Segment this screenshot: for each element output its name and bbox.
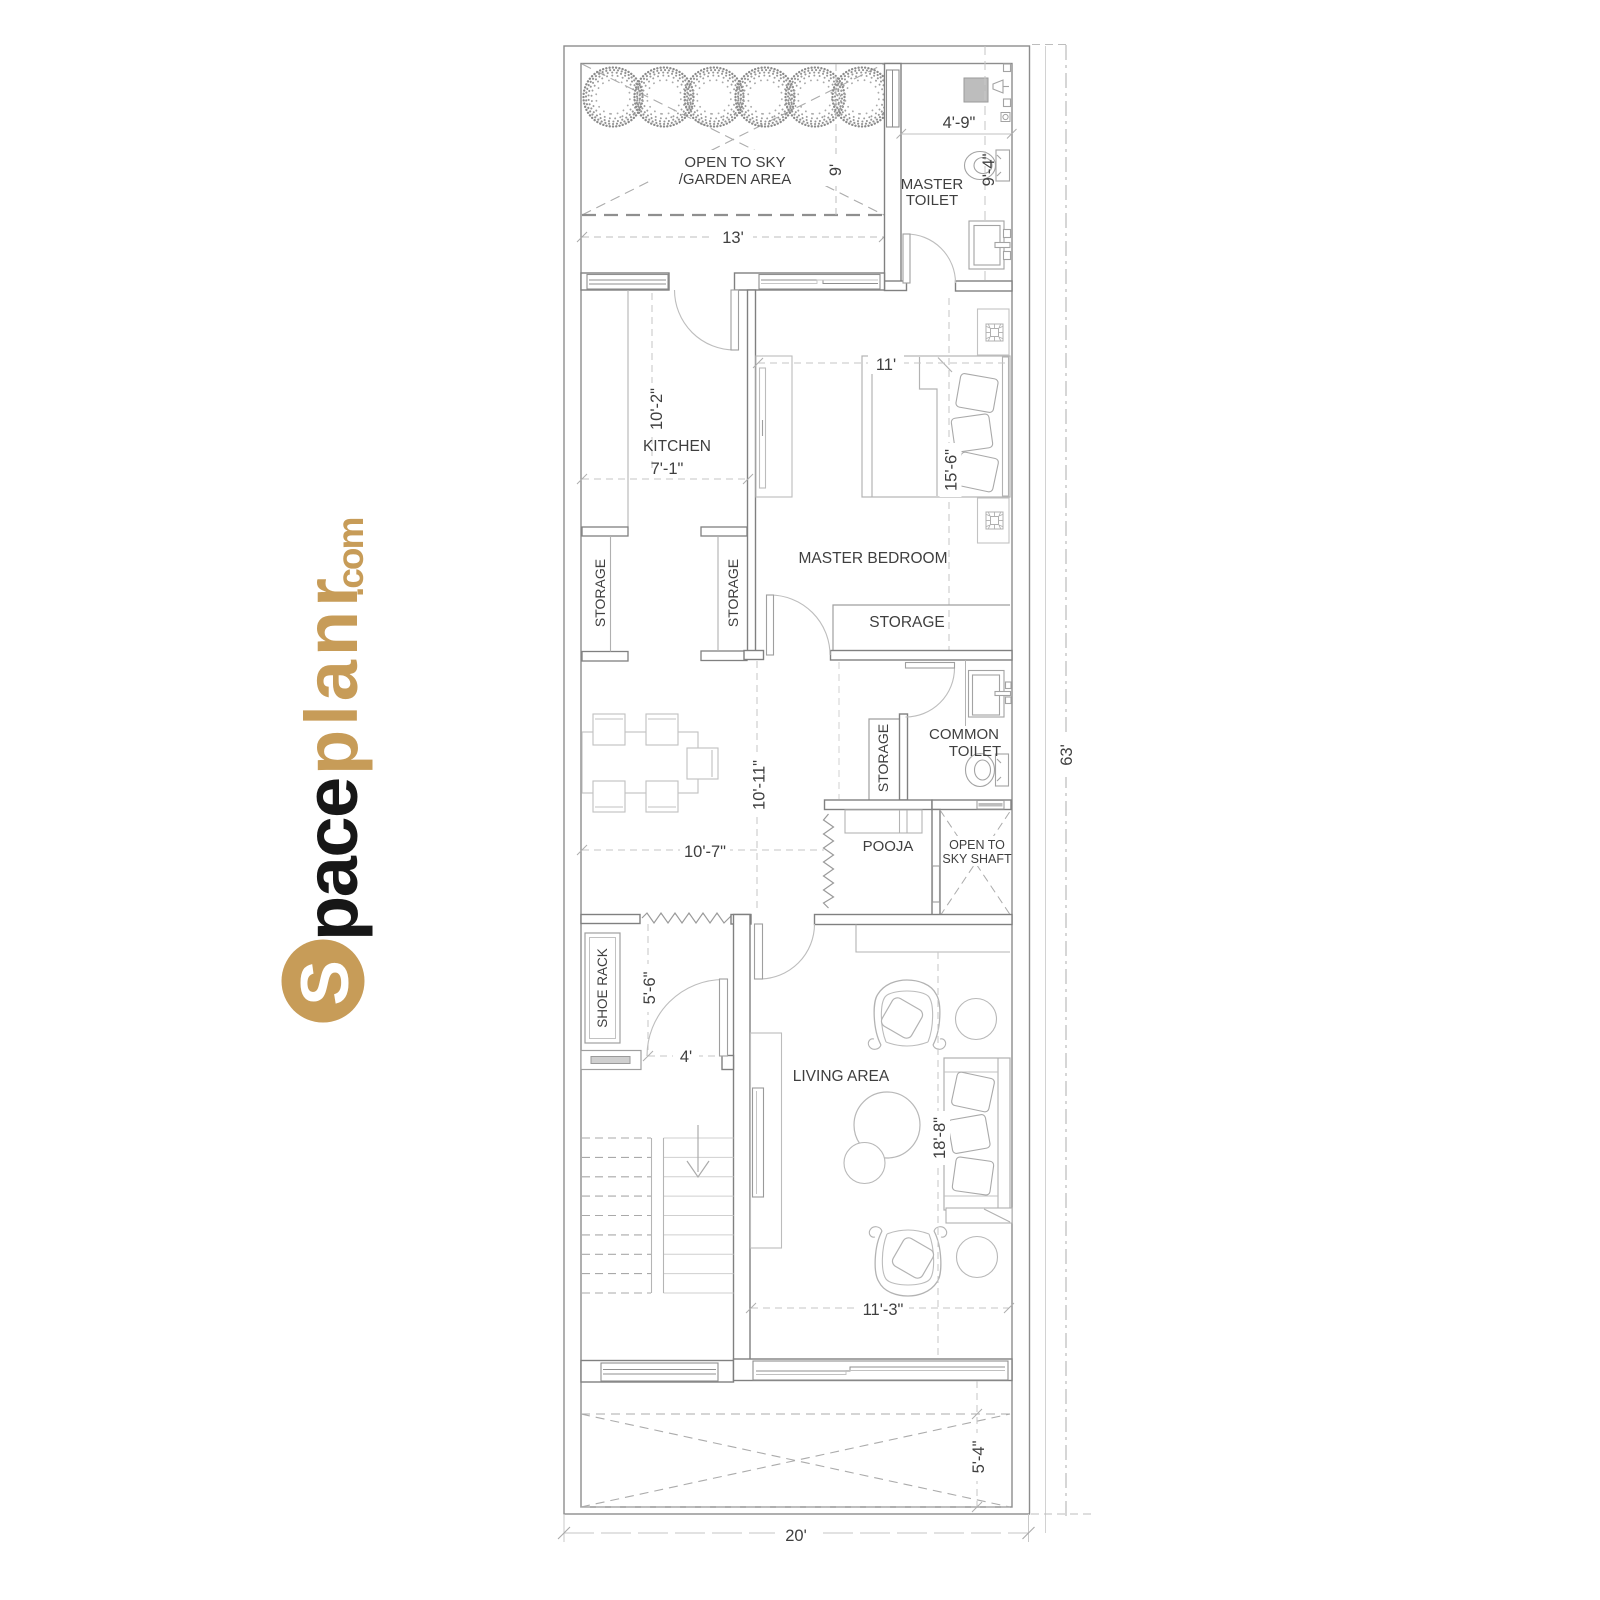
svg-text:.com: .com bbox=[330, 519, 371, 597]
svg-text:OPEN TO: OPEN TO bbox=[949, 838, 1005, 852]
svg-text:10'-11": 10'-11" bbox=[751, 760, 769, 810]
svg-text:13': 13' bbox=[722, 229, 744, 247]
svg-text:5'-6": 5'-6" bbox=[641, 971, 659, 1004]
svg-text:MASTER BEDROOM: MASTER BEDROOM bbox=[799, 550, 948, 567]
svg-text:LIVING AREA: LIVING AREA bbox=[793, 1068, 890, 1085]
svg-text:STORAGE: STORAGE bbox=[725, 559, 741, 627]
svg-text:7'-1": 7'-1" bbox=[651, 460, 684, 478]
svg-text:STORAGE: STORAGE bbox=[592, 559, 608, 627]
svg-text:10'-2": 10'-2" bbox=[648, 388, 666, 430]
svg-text:/GARDEN AREA: /GARDEN AREA bbox=[679, 171, 792, 188]
svg-text:4'-9": 4'-9" bbox=[943, 114, 976, 132]
svg-text:SKY SHAFT: SKY SHAFT bbox=[942, 852, 1012, 866]
svg-text:COMMON: COMMON bbox=[929, 726, 999, 743]
svg-text:OPEN TO SKY: OPEN TO SKY bbox=[684, 154, 785, 171]
svg-text:10'-7": 10'-7" bbox=[684, 843, 726, 861]
svg-text:POOJA: POOJA bbox=[863, 838, 914, 855]
svg-text:9': 9' bbox=[827, 164, 845, 176]
svg-text:KITCHEN: KITCHEN bbox=[643, 438, 711, 455]
svg-text:18'-8": 18'-8" bbox=[931, 1117, 949, 1159]
svg-text:9'-4": 9'-4" bbox=[980, 153, 998, 186]
svg-text:MASTER: MASTER bbox=[901, 176, 964, 193]
svg-text:5'-4": 5'-4" bbox=[970, 1440, 988, 1473]
svg-text:SHOE RACK: SHOE RACK bbox=[595, 948, 610, 1028]
svg-text:63': 63' bbox=[1058, 744, 1076, 766]
svg-text:15'-6": 15'-6" bbox=[943, 449, 961, 491]
svg-text:11'-3": 11'-3" bbox=[863, 1301, 904, 1319]
svg-text:11': 11' bbox=[876, 356, 896, 374]
svg-text:S: S bbox=[287, 960, 363, 1005]
svg-text:pace: pace bbox=[290, 778, 373, 941]
svg-text:STORAGE: STORAGE bbox=[869, 614, 945, 631]
svg-text:TOILET: TOILET bbox=[906, 192, 958, 209]
svg-text:STORAGE: STORAGE bbox=[875, 724, 891, 792]
svg-text:20': 20' bbox=[785, 1527, 807, 1545]
svg-text:4': 4' bbox=[680, 1048, 692, 1066]
svg-text:planr: planr bbox=[290, 574, 373, 775]
svg-text:TOILET: TOILET bbox=[949, 743, 1001, 760]
